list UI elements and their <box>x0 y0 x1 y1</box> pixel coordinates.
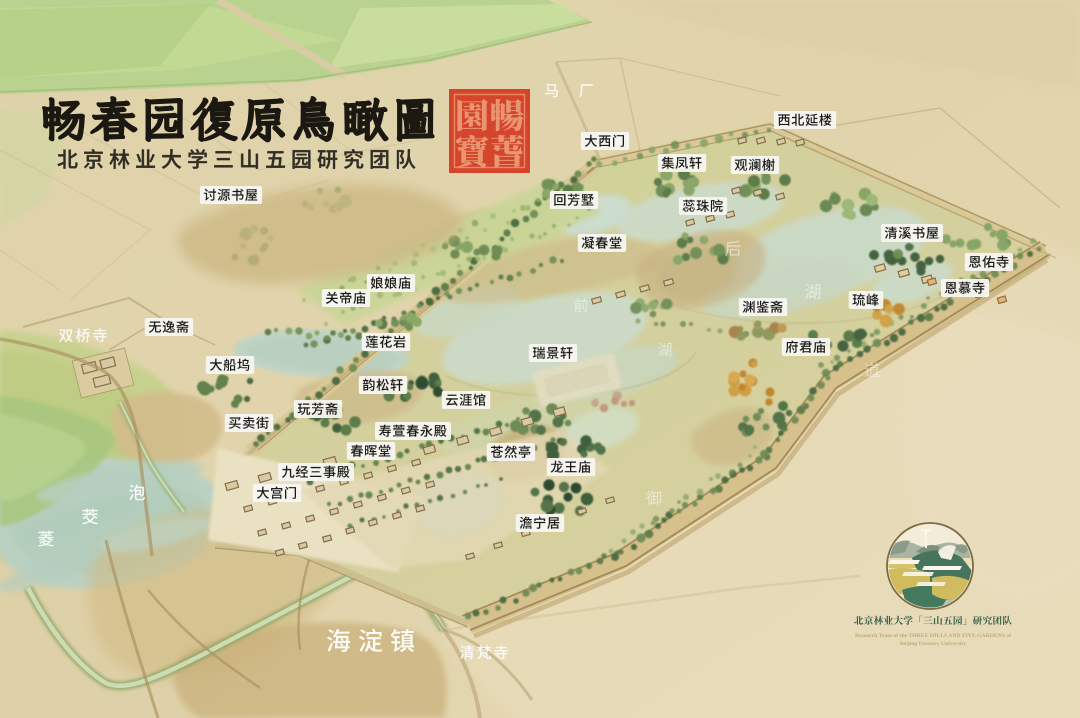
svg-text:Beijing Forestry University: Beijing Forestry University <box>900 641 966 647</box>
svg-text:Research Team of the THREE HIL: Research Team of the THREE HILLS AND FIV… <box>855 633 1011 639</box>
